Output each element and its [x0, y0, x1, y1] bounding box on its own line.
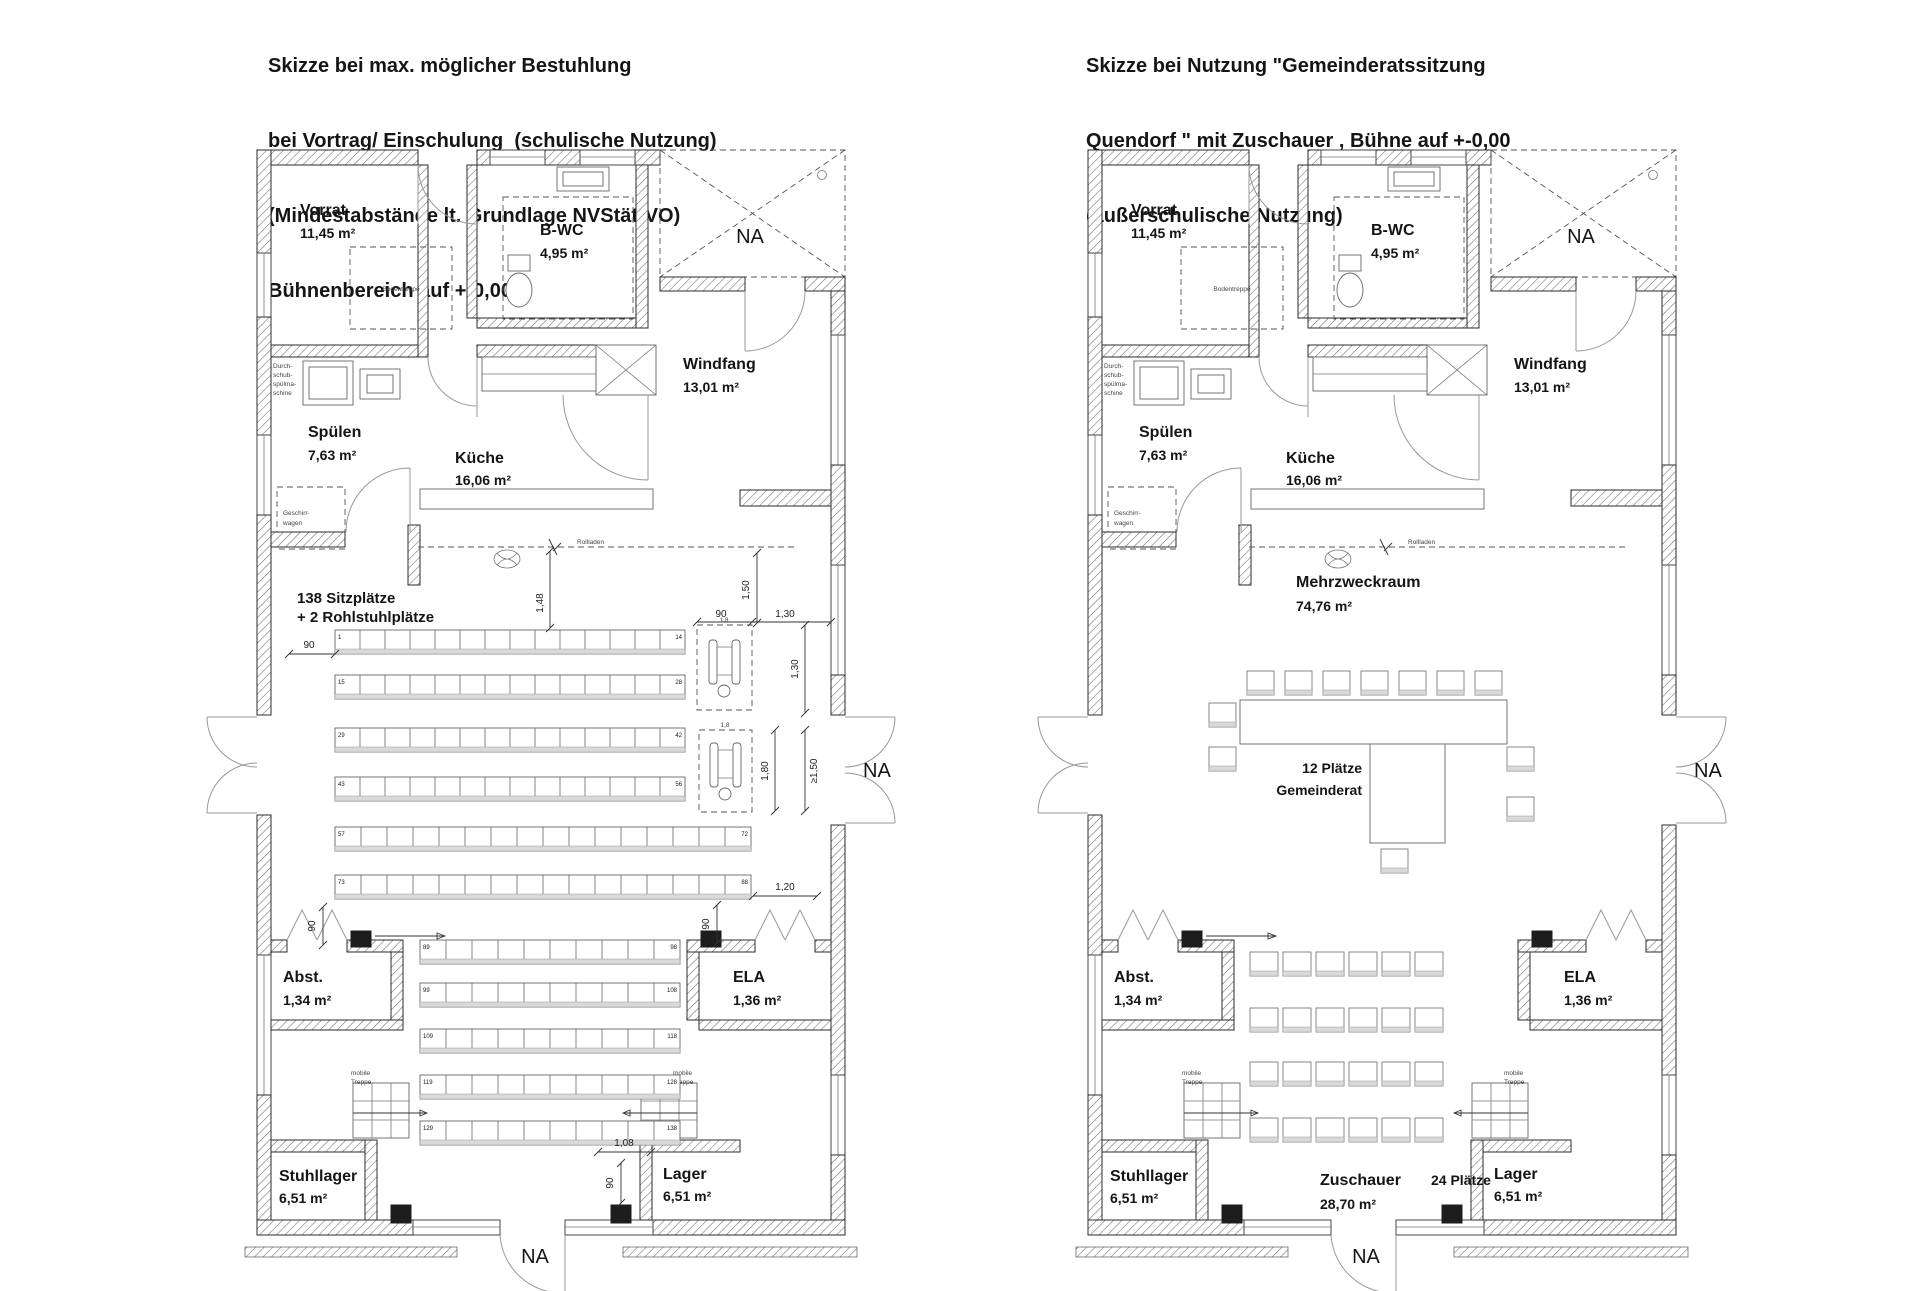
chair-back — [1250, 971, 1278, 976]
chair-back — [1250, 1081, 1278, 1086]
chair-back — [1283, 971, 1311, 976]
left-floor-plan — [207, 150, 895, 1291]
seat-number-end: 138 — [667, 1126, 678, 1132]
chair-back — [1382, 1027, 1410, 1032]
chair-back — [1209, 722, 1236, 727]
dim-90-wc: 90 — [715, 609, 727, 620]
table-label-line1: 12 Plätze — [1302, 760, 1362, 776]
chair-back — [1316, 1137, 1344, 1142]
seat-row: 114 — [335, 630, 685, 654]
seat-number-start: 43 — [338, 782, 345, 788]
seat-number-start: 15 — [338, 680, 345, 686]
chair-back — [1381, 868, 1408, 873]
seat-number-end: 42 — [675, 733, 682, 739]
seat-number-start: 29 — [338, 733, 345, 739]
chair-back — [1415, 1137, 1443, 1142]
seat-number-end: 98 — [670, 945, 677, 951]
seat-row: 7388 — [335, 875, 751, 899]
seat-number-start: 129 — [423, 1126, 434, 1132]
chair-back — [1209, 766, 1236, 771]
zuschauer-area: 28,70 m² — [1320, 1196, 1376, 1212]
seating-note-line1: 138 Sitzplätze — [297, 590, 395, 607]
seat-number-end: 128 — [667, 1080, 678, 1086]
dim-148: 1,48 — [535, 593, 546, 613]
chair-back — [1283, 1027, 1311, 1032]
chair-back — [1382, 1081, 1410, 1086]
seat-number-start: 99 — [423, 988, 430, 994]
chair-back — [1250, 1027, 1278, 1032]
chair-back — [1475, 690, 1502, 695]
seat-number-start: 57 — [338, 832, 345, 838]
seat-number-end: 28 — [675, 680, 682, 686]
chair-back — [1361, 690, 1388, 695]
chair-back — [1247, 690, 1274, 695]
chair-back — [1316, 1027, 1344, 1032]
wheelchair-space-2: 1,8 — [699, 722, 752, 812]
seat-row: 8998 — [420, 940, 680, 964]
floor-plans-canvas: NA — [0, 0, 1920, 1291]
zuschauer-label: Zuschauer — [1320, 1172, 1401, 1189]
zuschauer-chairs — [1250, 952, 1443, 1142]
dim-90-rows: 90 — [303, 640, 315, 651]
chair-back — [1382, 971, 1410, 976]
dim-90-lager: 90 — [605, 1177, 616, 1189]
chair-back — [1399, 690, 1426, 695]
dim-130-wc: 1,30 — [775, 609, 795, 620]
dim-130-v: 1,30 — [790, 659, 801, 679]
seat-row: 99108 — [420, 983, 680, 1007]
seat-row: 5772 — [335, 827, 751, 851]
seat-number-start: 89 — [423, 945, 430, 951]
seating-note-line2: + 2 Rohlstuhlplätze — [297, 609, 434, 626]
chair-back — [1250, 1137, 1278, 1142]
chair-back — [1285, 690, 1312, 695]
seat-number-end: 56 — [675, 782, 682, 788]
seat-row: 4356 — [335, 777, 685, 801]
chair-back — [1349, 1137, 1377, 1142]
seat-number-end: 118 — [667, 1034, 677, 1040]
mehrzweckraum-area: 74,76 m² — [1296, 598, 1352, 614]
chair-back — [1283, 1081, 1311, 1086]
seat-number-start: 119 — [423, 1080, 433, 1086]
chair-back — [1382, 1137, 1410, 1142]
seat-row: 129138 — [420, 1121, 680, 1145]
chair-back — [1349, 1081, 1377, 1086]
svg-text:1,8: 1,8 — [720, 722, 729, 729]
wheelchair-space-1: 1,8 — [697, 617, 752, 710]
dim-150: 1,50 — [741, 580, 752, 600]
chair-back — [1415, 1027, 1443, 1032]
seat-number-end: 14 — [675, 635, 682, 641]
wheelchair-icon — [710, 743, 741, 800]
seat-number-end: 72 — [741, 832, 748, 838]
seat-number-end: 88 — [741, 880, 748, 886]
chair-back — [1507, 766, 1534, 771]
seat-number-end: 108 — [667, 988, 678, 994]
chair-back — [1323, 690, 1350, 695]
wheelchair-icon — [709, 640, 740, 697]
seat-row: 119128 — [420, 1075, 680, 1099]
chair-back — [1349, 1027, 1377, 1032]
dim-108: 1,08 — [614, 1138, 634, 1149]
seat-row: 1528 — [335, 675, 685, 699]
chair-back — [1437, 690, 1464, 695]
zuschauer-seats: 24 Plätze — [1431, 1172, 1491, 1188]
dim-120: 1,20 — [775, 882, 795, 893]
chair-back — [1316, 971, 1344, 976]
seat-row: 2942 — [335, 728, 685, 752]
seat-rows: 1141528294243565772738889989910810911811… — [335, 630, 751, 1145]
chair-back — [1415, 971, 1443, 976]
gemeinderat-table — [1240, 700, 1507, 843]
chair-back — [1316, 1081, 1344, 1086]
mehrzweckraum-name: Mehrzweckraum — [1296, 574, 1421, 591]
seat-number-start: 109 — [423, 1034, 434, 1040]
dim-180: 1,80 — [760, 761, 771, 781]
chair-back — [1283, 1137, 1311, 1142]
table-label-line2: Gemeinderat — [1276, 782, 1362, 798]
dim-90-abst: 90 — [307, 920, 318, 932]
dim-90-ela: 90 — [701, 918, 712, 930]
chair-back — [1415, 1081, 1443, 1086]
seat-number-start: 73 — [338, 880, 345, 886]
chair-back — [1507, 816, 1534, 821]
seat-row: 109118 — [420, 1029, 680, 1053]
dim-min150: ≥1,50 — [809, 758, 820, 783]
chair-back — [1349, 971, 1377, 976]
